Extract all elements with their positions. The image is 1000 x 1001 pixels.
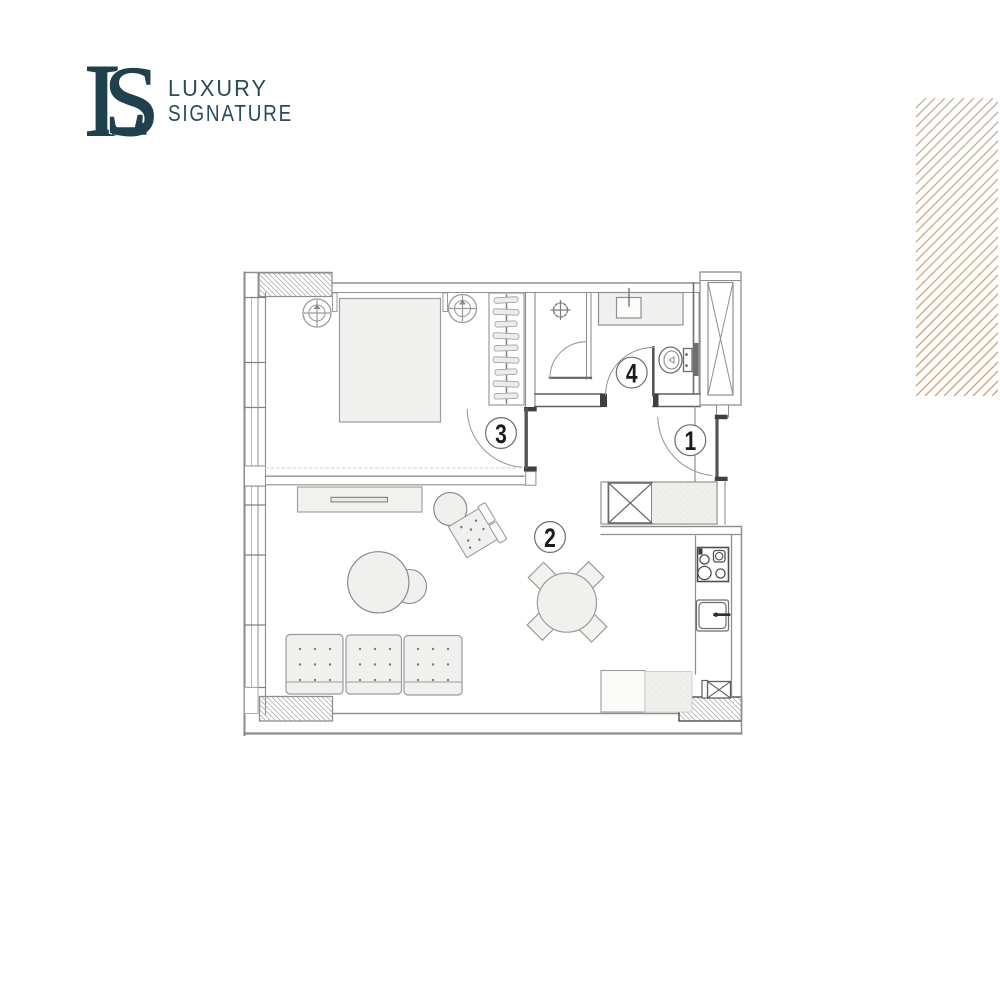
svg-text:S: S (104, 45, 160, 157)
svg-text:3: 3 (495, 419, 507, 449)
svg-text:SIGNATURE: SIGNATURE (168, 100, 293, 126)
svg-text:4: 4 (626, 359, 638, 389)
svg-text:LUXURY: LUXURY (168, 75, 268, 101)
svg-text:1: 1 (684, 427, 696, 457)
svg-text:2: 2 (544, 523, 556, 553)
